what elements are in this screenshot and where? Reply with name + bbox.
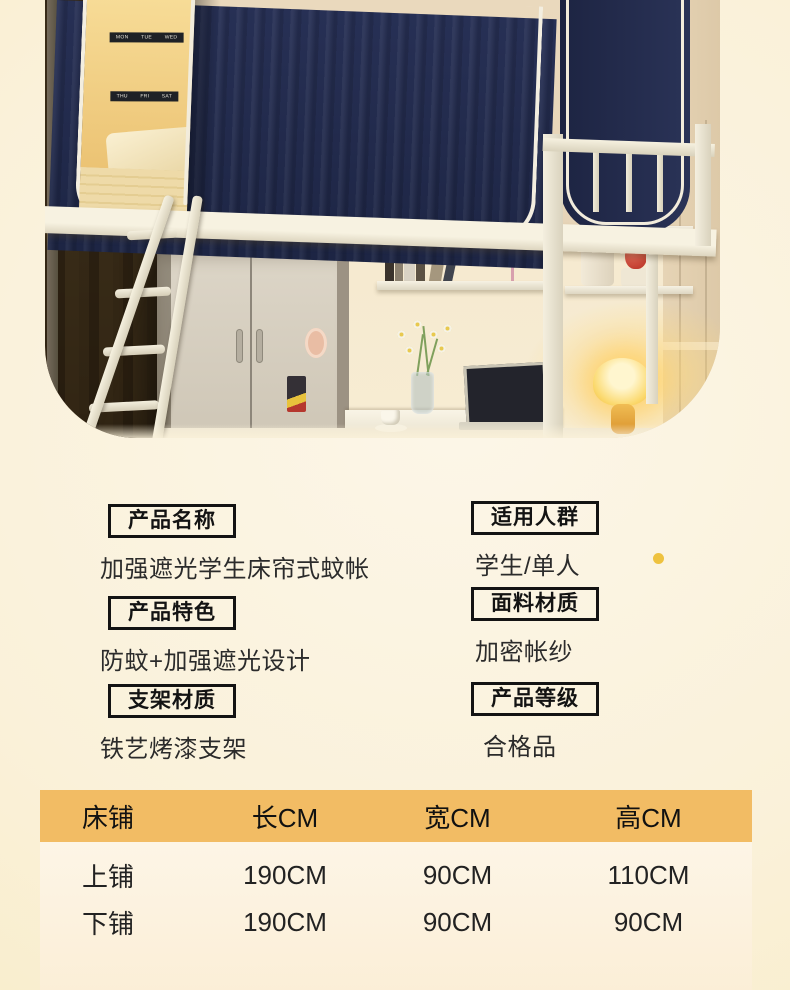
wardrobe-handle (237, 330, 242, 362)
cell-length: 190CM (200, 907, 370, 938)
spec-value: 铁艺烤漆支架 (100, 729, 247, 764)
product-detail-page: MON TUE WED THU FRI SAT (0, 0, 790, 990)
spec-label: 产品等级 (471, 682, 599, 716)
spec-label: 面料材质 (471, 587, 599, 621)
ladder (53, 196, 223, 438)
spec-value: 防蚊+加强遮光设计 (100, 641, 311, 676)
bed-curtain-side-panel (560, 0, 690, 233)
product-photo: MON TUE WED THU FRI SAT (45, 0, 720, 438)
desk-lamp (593, 358, 651, 406)
size-table-header: 床铺 长CM 宽CM 高CM (40, 790, 752, 842)
column-header: 长CM (200, 798, 370, 835)
poster-day-label: THU (117, 94, 128, 99)
bed-leg (646, 240, 658, 404)
curtain-opening: MON TUE WED THU FRI SAT (79, 0, 195, 213)
spec-product-grade: 产品等级 合格品 (463, 682, 599, 762)
bed-leg (695, 124, 711, 246)
wardrobe-handle (257, 330, 262, 362)
flower (397, 330, 406, 339)
schedule-poster: THU FRI SAT (110, 77, 178, 115)
wardrobe-sticker (287, 376, 306, 412)
laptop (463, 362, 548, 428)
coffee-cup (381, 410, 400, 425)
table-row: 上铺 190CM 90CM 110CM (40, 852, 752, 899)
shelf-board (565, 286, 693, 294)
wardrobe-sticker (305, 328, 327, 358)
desk-lamp-base (611, 404, 635, 434)
cell-width: 90CM (370, 860, 545, 891)
column-header: 宽CM (370, 798, 545, 835)
row-label: 下铺 (40, 904, 200, 941)
spec-frame-material: 支架材质 铁艺烤漆支架 (100, 684, 247, 764)
flower (443, 324, 452, 333)
railing-slat (657, 150, 663, 212)
flower (429, 330, 438, 339)
spec-product-feature: 产品特色 防蚊+加强遮光设计 (100, 596, 311, 676)
poster-day-label: TUE (141, 35, 152, 40)
curtain-piping (566, 0, 684, 225)
cell-length: 190CM (200, 860, 370, 891)
flower (437, 344, 446, 353)
poster-day-label: FRI (140, 94, 149, 99)
flower (405, 346, 414, 355)
railing-slat (593, 150, 599, 212)
spec-value: 加强遮光学生床帘式蚊帐 (100, 549, 370, 584)
railing-slat (626, 150, 632, 212)
spec-value: 学生/单人 (463, 546, 599, 581)
spec-target-users: 适用人群 学生/单人 (463, 501, 599, 581)
schedule-poster: MON TUE WED (110, 17, 184, 57)
column-header: 高CM (545, 798, 752, 835)
spec-label: 适用人群 (471, 501, 599, 535)
spec-label: 产品名称 (108, 504, 236, 538)
cell-height: 110CM (545, 860, 752, 891)
column-header: 床铺 (40, 798, 200, 835)
floor (155, 428, 663, 438)
spec-value: 合格品 (463, 727, 599, 762)
poster-day-label: SAT (162, 94, 172, 99)
shelf-board (377, 281, 559, 290)
spec-value: 加密帐纱 (463, 632, 599, 667)
poster-day-label: WED (165, 35, 178, 40)
glass-vase (411, 372, 434, 414)
spec-product-name: 产品名称 加强遮光学生床帘式蚊帐 (100, 504, 370, 584)
size-table: 床铺 长CM 宽CM 高CM 上铺 190CM 90CM 110CM 下铺 19… (40, 790, 752, 990)
cell-height: 90CM (545, 907, 752, 938)
poster-day-label: MON (116, 35, 129, 40)
flower (413, 320, 422, 329)
spec-fabric-material: 面料材质 加密帐纱 (463, 587, 599, 667)
bed-leg (543, 134, 563, 438)
row-label: 上铺 (40, 857, 200, 894)
table-row: 下铺 190CM 90CM 90CM (40, 899, 752, 946)
size-table-body: 上铺 190CM 90CM 110CM 下铺 190CM 90CM 90CM (40, 842, 752, 990)
saucer (375, 424, 407, 432)
laptop-base (459, 422, 553, 430)
accent-dot (653, 553, 664, 564)
cell-width: 90CM (370, 907, 545, 938)
spec-label: 支架材质 (108, 684, 236, 718)
spec-label: 产品特色 (108, 596, 236, 630)
